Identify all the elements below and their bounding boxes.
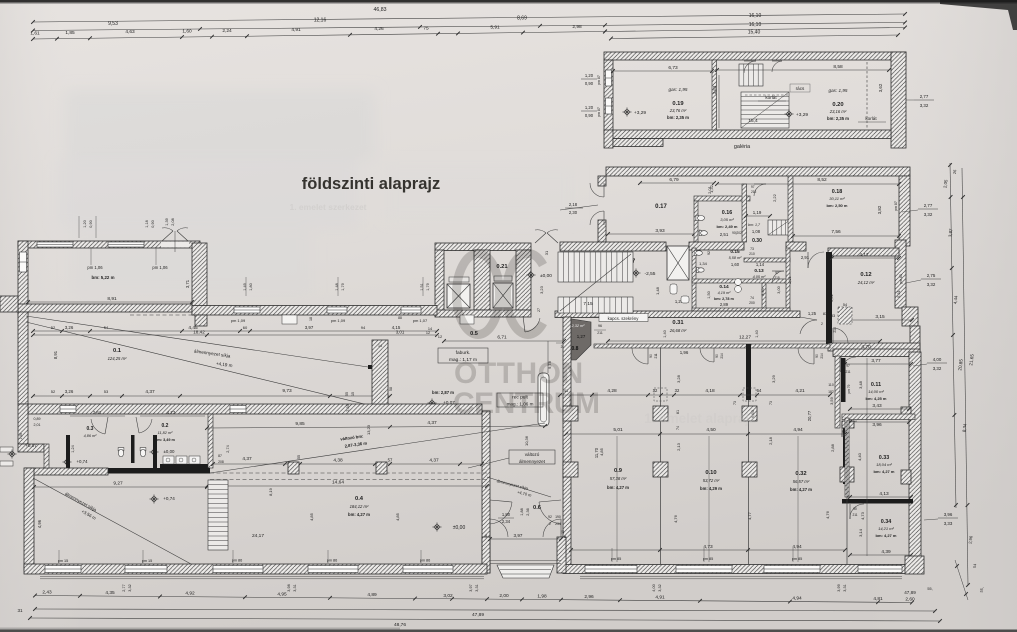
svg-text:3,15: 3,15 [875, 314, 885, 320]
svg-text:4,40: 4,40 [857, 452, 862, 461]
svg-text:1,20: 1,20 [585, 105, 594, 110]
svg-text:9,53: 9,53 [108, 21, 118, 27]
svg-text:58: 58 [389, 387, 393, 391]
svg-text:2,18: 2,18 [768, 436, 773, 445]
svg-text:55: 55 [345, 392, 349, 396]
svg-text:12,27: 12,27 [739, 335, 751, 341]
svg-text:pm 83: pm 83 [899, 274, 903, 284]
svg-text:4,73: 4,73 [703, 544, 713, 550]
svg-text:4,76: 4,76 [673, 514, 678, 523]
svg-text:pm 87: pm 87 [894, 201, 898, 211]
svg-text:bm: 2,78 m: bm: 2,78 m [714, 297, 734, 301]
svg-text:0.16: 0.16 [722, 210, 733, 216]
svg-text:15: 15 [351, 392, 355, 396]
svg-text:3,31: 3,31 [475, 584, 479, 591]
svg-text:3,32: 3,32 [128, 584, 132, 591]
svg-text:korlát: korlát [765, 95, 777, 100]
svg-text:bm: 2,35 m: bm: 2,35 m [827, 116, 849, 121]
svg-text:0,90: 0,90 [585, 113, 594, 118]
svg-text:1,98: 1,98 [537, 594, 547, 600]
svg-text:0.4: 0.4 [355, 496, 364, 502]
svg-text:64: 64 [757, 388, 762, 393]
svg-text:5,52: 5,52 [829, 293, 834, 302]
svg-text:0.13: 0.13 [754, 268, 764, 274]
svg-text:1,40: 1,40 [663, 330, 667, 337]
svg-text:8,91: 8,91 [53, 350, 58, 359]
svg-text:korlát: korlát [865, 116, 877, 121]
svg-text:1,25: 1,25 [808, 311, 817, 316]
svg-text:1,80: 1,80 [502, 512, 511, 517]
svg-text:2,75: 2,75 [927, 273, 936, 278]
svg-text:10: 10 [561, 530, 565, 534]
svg-text:97: 97 [846, 364, 850, 368]
svg-text:214: 214 [820, 353, 824, 359]
svg-text:bm: 4,27 m: bm: 4,27 m [348, 512, 370, 517]
svg-text:3,32: 3,32 [920, 103, 929, 108]
svg-text:8: 8 [485, 534, 487, 538]
svg-text:214: 214 [720, 353, 724, 359]
svg-text:bm: 4,27 m: bm: 4,27 m [876, 533, 897, 538]
svg-text:9,27: 9,27 [113, 481, 123, 487]
svg-text:2,13: 2,13 [676, 442, 681, 451]
svg-text:1,20: 1,20 [83, 220, 87, 227]
svg-text:4,39: 4,39 [881, 549, 891, 555]
svg-text:16,10: 16,10 [749, 22, 762, 28]
svg-text:bm: 1,7: bm: 1,7 [748, 223, 761, 227]
svg-text:pm 87: pm 87 [597, 75, 601, 85]
svg-text:211: 211 [852, 513, 857, 517]
svg-text:kapcs. szekrény: kapcs. szekrény [608, 316, 640, 321]
svg-text:24,12 m²: 24,12 m² [857, 280, 875, 285]
svg-text:4,63: 4,63 [125, 29, 135, 35]
svg-text:0.33: 0.33 [879, 455, 890, 461]
svg-text:2,77: 2,77 [122, 584, 126, 591]
svg-text:3,96: 3,96 [944, 512, 953, 517]
svg-text:2,61: 2,61 [93, 410, 102, 415]
svg-text:97: 97 [775, 271, 779, 275]
svg-text:9,73: 9,73 [282, 388, 292, 394]
svg-text:4,26: 4,26 [374, 26, 384, 32]
svg-text:3,32: 3,32 [658, 584, 662, 591]
svg-text:1,48: 1,48 [335, 283, 339, 290]
svg-text:1,79: 1,79 [426, 283, 430, 290]
svg-text:214: 214 [833, 327, 837, 333]
svg-text:3,26: 3,26 [65, 325, 74, 330]
svg-text:pm 85: pm 85 [792, 557, 803, 561]
svg-text:92: 92 [707, 251, 711, 255]
svg-text:bm: 2,35 m: bm: 2,35 m [667, 115, 689, 120]
svg-text:4,94: 4,94 [792, 544, 802, 550]
svg-text:4,89: 4,89 [367, 592, 377, 598]
svg-text:1,40: 1,40 [755, 330, 759, 337]
svg-text:2,30: 2,30 [569, 210, 578, 215]
svg-text:0.17: 0.17 [655, 204, 667, 210]
svg-text:90: 90 [649, 354, 653, 358]
svg-text:83: 83 [831, 314, 835, 318]
svg-text:6,73: 6,73 [668, 65, 678, 71]
svg-text:bm: 2,50 m: bm: 2,50 m [827, 203, 848, 208]
svg-text:73: 73 [750, 247, 754, 251]
svg-text:48,76: 48,76 [394, 622, 406, 628]
svg-text:7,56: 7,56 [831, 229, 841, 235]
svg-text:bm: 4,27 m: bm: 4,27 m [790, 487, 812, 492]
svg-text:2,34: 2,34 [502, 519, 511, 524]
svg-text:bm: 4,27 m: bm: 4,27 m [874, 469, 895, 474]
svg-text:32: 32 [675, 388, 680, 393]
svg-text:60: 60 [243, 325, 248, 330]
svg-text:52: 52 [51, 389, 56, 394]
svg-text:4,37: 4,37 [429, 458, 439, 464]
svg-text:55: 55 [297, 455, 301, 459]
svg-text:0.1: 0.1 [113, 348, 122, 354]
svg-text:2,89: 2,89 [720, 302, 729, 307]
svg-text:1,56: 1,56 [19, 433, 23, 440]
svg-text:3,77: 3,77 [871, 358, 881, 364]
svg-text:1,61: 1,61 [30, 31, 40, 37]
svg-text:1,50: 1,50 [707, 291, 711, 298]
svg-text:2,98: 2,98 [572, 24, 582, 30]
svg-text:4,35: 4,35 [105, 590, 115, 596]
svg-text:2,32 m²: 2,32 m² [571, 324, 586, 328]
svg-text:215: 215 [751, 190, 757, 194]
svg-text:14,21 m²: 14,21 m² [878, 526, 894, 531]
svg-text:75: 75 [423, 26, 429, 32]
svg-text:3,93: 3,93 [655, 228, 665, 234]
svg-text:3,96: 3,96 [872, 422, 882, 428]
svg-text:1. emelet szerkezet: 1. emelet szerkezet [289, 202, 366, 212]
svg-text:0,90: 0,90 [151, 220, 155, 227]
svg-text:55,: 55, [980, 587, 985, 593]
svg-text:pm 15: pm 15 [58, 559, 69, 563]
svg-text:90|202: 90|202 [732, 231, 742, 235]
svg-text:5,91: 5,91 [490, 25, 500, 31]
svg-text:57,38 m²: 57,38 m² [610, 476, 627, 481]
svg-text:30,11 m²: 30,11 m² [829, 196, 845, 201]
svg-text:56,57 m²: 56,57 m² [793, 479, 810, 484]
svg-text:4,91: 4,91 [291, 27, 301, 33]
svg-text:3,63: 3,63 [712, 85, 717, 94]
svg-text:3,26: 3,26 [65, 389, 74, 394]
svg-text:47,89: 47,89 [472, 612, 484, 618]
svg-text:0.31: 0.31 [672, 320, 684, 326]
svg-text:54: 54 [843, 303, 847, 307]
svg-text:2,08: 2,08 [171, 218, 175, 225]
svg-text:124,25 m²: 124,25 m² [108, 356, 127, 361]
svg-text:13,23: 13,23 [366, 424, 371, 435]
svg-text:3,97: 3,97 [514, 533, 523, 538]
svg-text:bm: 2,49 m: bm: 2,49 m [717, 224, 738, 229]
svg-text:4,13: 4,13 [879, 491, 889, 497]
svg-text:4,70: 4,70 [861, 344, 871, 350]
svg-text:gas: 1,95: gas: 1,95 [669, 87, 688, 92]
svg-text:57: 57 [388, 458, 393, 463]
svg-text:2,18: 2,18 [569, 202, 578, 207]
svg-text:3,29: 3,29 [771, 374, 776, 383]
svg-text:1,08: 1,08 [752, 229, 761, 234]
svg-text:1,27: 1,27 [577, 334, 586, 339]
svg-text:234: 234 [555, 522, 561, 526]
svg-text:0.6: 0.6 [533, 505, 542, 511]
svg-text:8,52: 8,52 [817, 177, 827, 183]
svg-text:3,00: 3,00 [777, 286, 781, 293]
svg-text:változó: változó [525, 452, 540, 457]
svg-text:190: 190 [555, 515, 561, 519]
svg-text:2,00: 2,00 [499, 593, 509, 599]
svg-text:110: 110 [828, 383, 834, 387]
svg-text:97: 97 [751, 185, 755, 189]
svg-text:3,31: 3,31 [843, 584, 847, 591]
svg-text:3,05 m²: 3,05 m² [720, 217, 734, 222]
svg-text:4,73: 4,73 [167, 410, 176, 415]
svg-text:pm 1,06: pm 1,06 [152, 265, 168, 270]
svg-text:200: 200 [749, 301, 755, 305]
svg-text:2,35: 2,35 [345, 403, 350, 412]
svg-text:88: 88 [398, 316, 402, 320]
svg-text:4,18: 4,18 [705, 388, 715, 394]
svg-text:0.9: 0.9 [614, 468, 623, 474]
svg-text:rács: rács [796, 86, 805, 91]
svg-text:15,40: 15,40 [748, 30, 761, 36]
svg-text:4,76: 4,76 [825, 510, 830, 519]
svg-text:1,51: 1,51 [420, 283, 424, 290]
svg-text:0.11: 0.11 [871, 382, 881, 388]
svg-text:5,01: 5,01 [613, 427, 623, 433]
svg-text:bm: 4,27 m: bm: 4,27 m [607, 485, 629, 490]
svg-text:8,19: 8,19 [268, 487, 273, 496]
svg-text:2: 2 [821, 322, 823, 326]
svg-text:3,32: 3,32 [927, 282, 936, 287]
svg-text:0.30: 0.30 [752, 238, 762, 244]
svg-text:4,96: 4,96 [37, 519, 42, 528]
svg-text:0,90: 0,90 [585, 81, 594, 86]
svg-text:4,73: 4,73 [860, 511, 865, 520]
svg-text:4,85: 4,85 [309, 512, 314, 521]
svg-text:bm: 2,87 m: bm: 2,87 m [432, 390, 454, 395]
svg-text:1,85: 1,85 [65, 30, 75, 36]
svg-text:0.12: 0.12 [860, 272, 871, 278]
svg-text:31: 31 [544, 250, 549, 255]
svg-text:0.19: 0.19 [672, 101, 684, 107]
svg-text:18: 18 [309, 317, 313, 321]
svg-text:74: 74 [750, 296, 754, 300]
svg-text:32: 32 [653, 388, 658, 393]
svg-text:pm 1,09: pm 1,09 [331, 318, 346, 323]
svg-text:bm: 5,22 m: bm: 5,22 m [92, 275, 115, 280]
svg-text:1,48: 1,48 [655, 286, 660, 295]
svg-text:0.15: 0.15 [730, 249, 740, 255]
svg-text:18,42: 18,42 [193, 330, 205, 335]
svg-text:3,31: 3,31 [293, 584, 297, 591]
svg-text:+0,74: +0,74 [163, 496, 175, 501]
svg-text:8,58: 8,58 [833, 64, 843, 70]
svg-text:4,05 m²: 4,05 m² [753, 275, 767, 279]
svg-text:0.8: 0.8 [572, 346, 579, 352]
svg-text:+3,29: +3,29 [796, 112, 808, 118]
svg-text:pm 87: pm 87 [597, 107, 601, 117]
svg-text:3,14: 3,14 [858, 528, 863, 537]
svg-text:6: 6 [564, 535, 566, 539]
svg-text:galéria: galéria [734, 144, 750, 150]
svg-text:CENTRUM: CENTRUM [453, 387, 600, 420]
svg-text:2,60: 2,60 [905, 596, 915, 602]
svg-text:8,91: 8,91 [107, 296, 117, 302]
svg-text:+0,07: +0,07 [25, 443, 37, 448]
svg-text:87: 87 [218, 454, 222, 458]
svg-text:pm 86: pm 86 [327, 559, 338, 563]
svg-text:46,83: 46,83 [374, 7, 387, 13]
svg-text:14: 14 [378, 344, 382, 348]
svg-text:3,28: 3,28 [676, 374, 681, 383]
svg-text:1,34: 1,34 [699, 261, 708, 266]
svg-text:5,31: 5,31 [896, 289, 901, 298]
svg-text:12: 12 [438, 334, 443, 339]
svg-text:bm: 3,49 m: bm: 3,49 m [155, 438, 175, 442]
svg-text:3,82: 3,82 [877, 205, 882, 214]
svg-text:15,4: 15,4 [748, 118, 758, 124]
svg-text:3,23: 3,23 [539, 285, 544, 294]
svg-text:4,85: 4,85 [395, 512, 400, 521]
svg-text:94: 94 [361, 325, 366, 330]
svg-text:2,77: 2,77 [924, 203, 933, 208]
svg-text:2,01: 2,01 [34, 423, 41, 427]
svg-text:1,80: 1,80 [249, 283, 253, 290]
svg-text:1. emelet alaprajz: 1. emelet alaprajz [644, 411, 756, 426]
svg-text:6,71: 6,71 [497, 335, 507, 341]
svg-text:14,64: 14,64 [332, 480, 344, 486]
svg-text:1,14: 1,14 [756, 262, 765, 267]
svg-text:2,36: 2,36 [526, 508, 530, 515]
svg-text:4,17: 4,17 [859, 252, 869, 258]
svg-text:4,91: 4,91 [655, 594, 665, 600]
svg-text:3,32: 3,32 [924, 212, 933, 217]
svg-text:53: 53 [104, 389, 109, 394]
svg-text:4,94: 4,94 [792, 596, 802, 602]
svg-text:4,95: 4,95 [277, 591, 287, 597]
svg-text:4,19 m²: 4,19 m² [718, 291, 732, 295]
svg-text:0.34: 0.34 [881, 519, 892, 525]
svg-text:2: 2 [549, 522, 551, 526]
svg-text:+3,29: +3,29 [634, 110, 646, 116]
svg-text:23,16 m²: 23,16 m² [829, 109, 847, 114]
svg-text:pm 1,06: pm 1,06 [87, 265, 103, 270]
svg-text:3,97: 3,97 [469, 584, 473, 591]
svg-text:0,89: 0,89 [34, 417, 41, 421]
svg-text:211: 211 [597, 331, 603, 335]
svg-text:3,48: 3,48 [858, 380, 863, 389]
svg-text:1,60: 1,60 [182, 29, 192, 35]
svg-text:1,96: 1,96 [680, 350, 689, 355]
svg-text:3,59: 3,59 [829, 396, 834, 405]
svg-text:2,22: 2,22 [772, 193, 777, 202]
svg-text:+0,74: +0,74 [76, 459, 88, 464]
svg-text:bm: 4,25 m: bm: 4,25 m [866, 396, 887, 401]
svg-text:1,79: 1,79 [341, 283, 345, 290]
svg-text:pm 1,09: pm 1,09 [231, 318, 246, 323]
svg-text:3,02: 3,02 [443, 593, 453, 599]
svg-text:4,81: 4,81 [873, 596, 883, 602]
svg-text:0.14: 0.14 [719, 284, 729, 290]
svg-text:54: 54 [973, 564, 977, 569]
svg-text:9,85: 9,85 [295, 421, 305, 427]
svg-text:0.20: 0.20 [832, 102, 843, 108]
svg-text:1,18: 1,18 [145, 220, 149, 227]
svg-text:73: 73 [769, 401, 773, 405]
svg-text:211: 211 [845, 370, 850, 374]
svg-text:pm 15: pm 15 [142, 559, 153, 563]
svg-text:23,76 m²: 23,76 m² [669, 108, 687, 113]
svg-text:211: 211 [654, 353, 658, 358]
svg-text:5,58 m²: 5,58 m² [729, 256, 743, 260]
svg-text:3,62: 3,62 [878, 83, 883, 92]
svg-text:18,04 m²: 18,04 m² [876, 462, 892, 467]
svg-text:210: 210 [749, 252, 755, 256]
svg-text:1,60: 1,60 [731, 262, 740, 267]
svg-text:0.10: 0.10 [705, 470, 716, 476]
svg-text:12,16: 12,16 [314, 18, 327, 24]
svg-text:4,94: 4,94 [793, 427, 803, 433]
svg-text:4,37: 4,37 [145, 389, 155, 395]
svg-text:14,00 m²: 14,00 m² [868, 389, 884, 394]
svg-text:4,38: 4,38 [333, 458, 343, 464]
svg-text:27: 27 [537, 308, 541, 312]
svg-text:2,74: 2,74 [226, 445, 230, 452]
svg-text:90: 90 [815, 354, 819, 358]
svg-text:3,99: 3,99 [837, 584, 841, 591]
svg-text:0.2: 0.2 [162, 423, 169, 429]
svg-text:7,15: 7,15 [583, 301, 593, 307]
svg-text:4,85: 4,85 [599, 447, 604, 456]
svg-text:3,43: 3,43 [872, 403, 882, 409]
svg-text:208: 208 [218, 460, 224, 464]
svg-text:55,: 55, [927, 587, 932, 591]
svg-text:90: 90 [853, 507, 857, 511]
svg-text:0.18: 0.18 [832, 189, 843, 195]
svg-text:1,49: 1,49 [243, 283, 247, 290]
svg-text:pm 85: pm 85 [611, 557, 622, 561]
svg-text:74: 74 [676, 426, 680, 430]
svg-text:2,91: 2,91 [788, 276, 792, 283]
svg-text:pm 79: pm 79 [847, 384, 851, 393]
svg-text:2,96: 2,96 [968, 535, 974, 544]
svg-text:4,37: 4,37 [242, 456, 252, 462]
svg-text:2,77: 2,77 [920, 94, 929, 99]
svg-text:31: 31 [17, 608, 23, 613]
svg-text:±0,00: ±0,00 [540, 273, 552, 279]
svg-text:±0,00: ±0,00 [164, 449, 176, 454]
svg-text:földszinti alaprajz: földszinti alaprajz [302, 175, 440, 193]
svg-text:16,10: 16,10 [749, 13, 762, 19]
svg-text:26,68 m²: 26,68 m² [669, 328, 687, 333]
svg-text:83: 83 [823, 312, 827, 316]
svg-text:96: 96 [598, 324, 602, 328]
svg-text:2,01: 2,01 [707, 185, 712, 194]
svg-text:gas: 1,95: gas: 1,95 [829, 88, 848, 93]
svg-text:92: 92 [548, 515, 552, 519]
svg-text:álmennyezet: álmennyezet [519, 459, 546, 464]
svg-text:3,32: 3,32 [933, 366, 942, 371]
svg-text:73: 73 [733, 401, 737, 405]
svg-text:47,89: 47,89 [904, 590, 916, 595]
svg-text:10,36: 10,36 [524, 435, 529, 446]
svg-text:11,82 m²: 11,82 m² [158, 431, 173, 435]
svg-text:3,97: 3,97 [305, 325, 314, 330]
svg-text:1,19: 1,19 [753, 210, 762, 215]
svg-text:12: 12 [426, 331, 430, 335]
svg-text:1,24: 1,24 [71, 445, 75, 452]
svg-text:90: 90 [715, 354, 719, 358]
svg-text:1,20: 1,20 [585, 73, 594, 78]
svg-text:3,98: 3,98 [287, 584, 291, 591]
